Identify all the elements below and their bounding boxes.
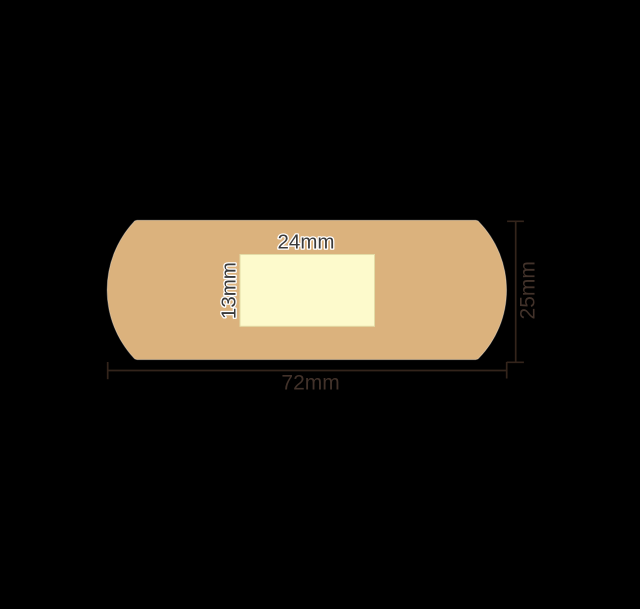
svg-text:13mm: 13mm xyxy=(218,262,241,319)
svg-text:24mm: 24mm xyxy=(278,231,335,254)
svg-text:25mm: 25mm xyxy=(517,261,540,319)
svg-text:72mm: 72mm xyxy=(281,372,339,395)
